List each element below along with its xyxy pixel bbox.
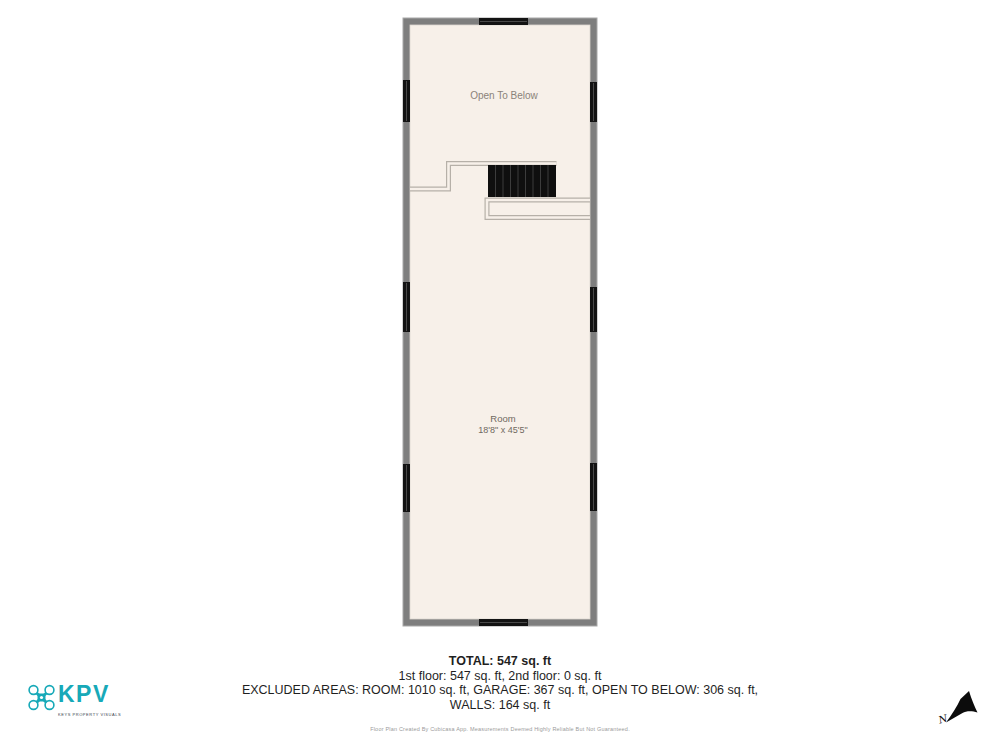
kpv-logo: KPV KEYS PROPERTY VISUALS <box>27 683 137 719</box>
north-label: N <box>936 712 950 726</box>
drone-icon <box>27 683 56 712</box>
floors-area-line: 1st floor: 547 sq. ft, 2nd floor: 0 sq. … <box>0 669 1000 684</box>
room-floor <box>410 25 590 619</box>
room-name-label: Room <box>490 413 515 424</box>
walls-area-line: WALLS: 164 sq. ft <box>0 698 1000 713</box>
open-to-below-label: Open To Below <box>470 90 538 101</box>
excluded-areas-line: EXCLUDED AREAS: ROOM: 1010 sq. ft, GARAG… <box>0 683 1000 698</box>
floor-plan-canvas: Open To Below Room 18'8" x 45'5" <box>0 0 1000 750</box>
logo-tagline: KEYS PROPERTY VISUALS <box>58 712 137 717</box>
logo-wordmark: KPV <box>58 683 110 705</box>
floor-plan-page: Open To Below Room 18'8" x 45'5" TOTAL: … <box>0 0 1000 750</box>
exterior-walls <box>403 18 597 626</box>
staircase <box>488 165 556 197</box>
north-arrow-head <box>946 691 978 723</box>
total-area-line: TOTAL: 547 sq. ft <box>0 654 1000 669</box>
area-summary: TOTAL: 547 sq. ft 1st floor: 547 sq. ft,… <box>0 654 1000 712</box>
north-arrow: N <box>928 683 988 733</box>
room-dimensions-label: 18'8" x 45'5" <box>478 425 527 435</box>
stair-flight <box>488 165 556 197</box>
disclaimer-text: Floor Plan Created By Cubicasa App. Meas… <box>0 726 1000 732</box>
